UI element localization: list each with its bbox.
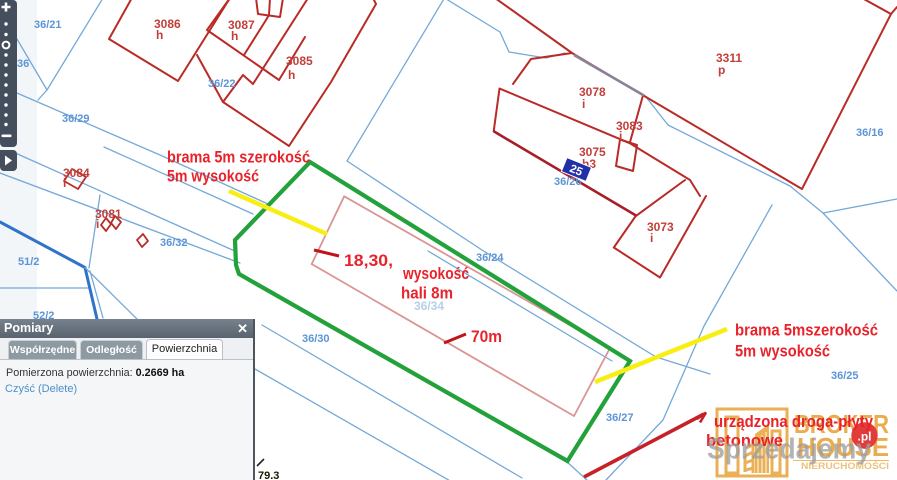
svg-text:Sprzedajemy: Sprzedajemy <box>707 434 871 466</box>
svg-text:urządzona droga-płyty: urządzona droga-płyty <box>714 412 873 431</box>
